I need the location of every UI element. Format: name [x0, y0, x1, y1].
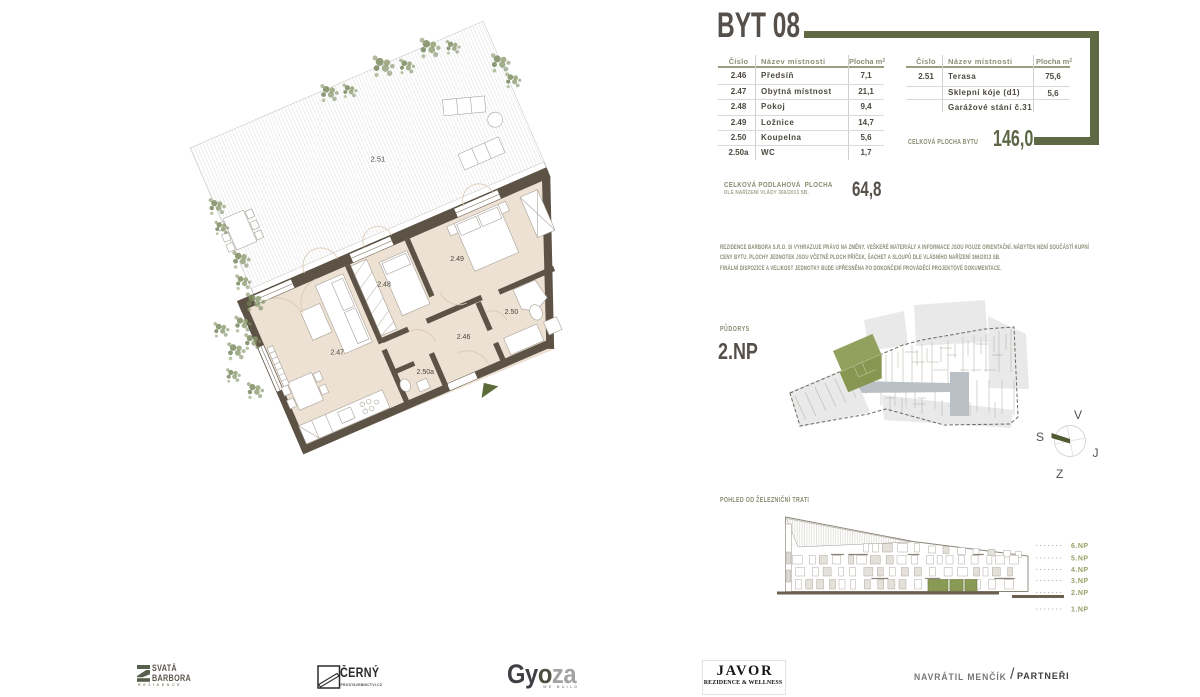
svg-text:5.NP: 5.NP	[1071, 556, 1089, 563]
svg-text:V: V	[1074, 408, 1082, 422]
svg-text:2.46: 2.46	[457, 334, 471, 341]
svg-text:2.NP: 2.NP	[1071, 590, 1089, 597]
svg-text:4.NP: 4.NP	[1071, 567, 1089, 574]
svg-text:Z: Z	[1056, 467, 1063, 481]
svg-text:2.50: 2.50	[505, 309, 519, 316]
svg-text:S: S	[1036, 430, 1044, 444]
svg-text:1.NP: 1.NP	[1071, 607, 1089, 614]
svg-text:2.50a: 2.50a	[417, 369, 435, 376]
svg-text:J: J	[1093, 446, 1099, 460]
svg-text:2.51: 2.51	[371, 154, 386, 163]
svg-text:6.NP: 6.NP	[1071, 543, 1089, 550]
svg-text:2.48: 2.48	[377, 281, 391, 288]
svg-text:2.49: 2.49	[450, 256, 464, 263]
svg-text:3.NP: 3.NP	[1071, 578, 1089, 585]
svg-text:2.47: 2.47	[330, 350, 344, 357]
